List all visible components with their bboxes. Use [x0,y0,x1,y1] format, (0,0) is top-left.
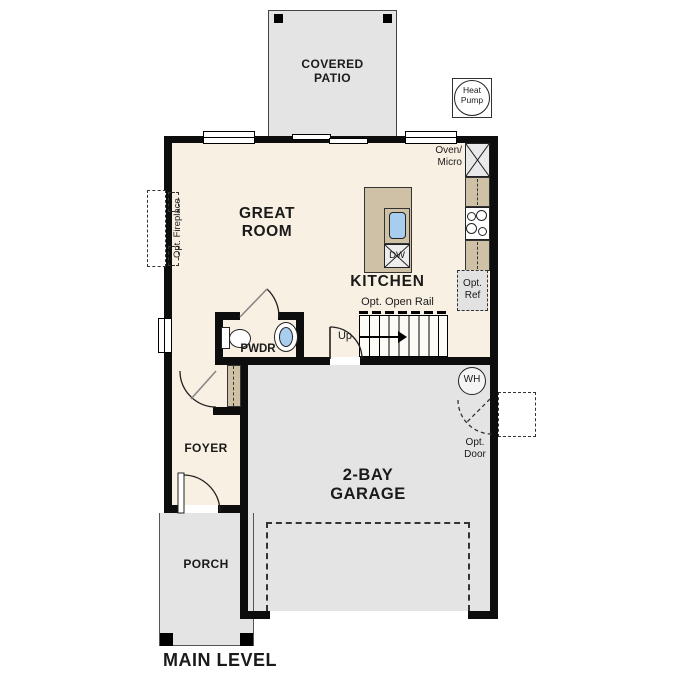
floor-plan: COVERED PATIO Heat Pump Opt. Fireplace [0,0,687,687]
patio-slider-door-left [292,134,331,140]
wall-garage-bottom-right [468,611,498,619]
heat-pump-label: Heat Pump [452,86,492,106]
porch-label: PORCH [162,557,250,571]
kitchen-label: KITCHEN [320,273,455,291]
window-top-left [203,131,255,144]
entry-closet-door [178,368,220,410]
wall-garage-left [240,365,248,619]
patio-post-left [274,14,283,23]
opt-door-outline [498,392,536,437]
porch-post-left [160,633,173,646]
window-left-wall [158,318,172,353]
covered-patio-label: COVERED PATIO [268,57,397,85]
patio-slider-door-right [329,138,368,144]
entry-closet-dash [233,366,234,406]
garage-door-recess [266,522,470,611]
wall-garage-top-left [215,357,330,365]
opt-door-swing [456,396,496,436]
water-heater-label: WH [458,374,486,386]
oven-micro-label: Oven/ Micro [408,145,462,169]
garage-label: 2-BAY GARAGE [290,466,446,505]
entry-closet-panel [227,365,241,407]
pwdr-door [238,286,284,322]
island-sink [389,212,406,239]
opt-open-rail-label: Opt. Open Rail [335,296,460,309]
burner-icon [466,223,477,234]
burner-icon [478,227,487,236]
opt-fireplace-label: Opt. Fireplace [172,188,188,268]
opt-fireplace-outline [147,190,166,267]
pwdr-label: PWDR [228,343,288,357]
opt-ref-label: Opt. Ref [457,278,488,302]
wall-garage-bottom-left [240,611,270,619]
opt-door-label: Opt. Door [452,437,498,461]
great-room-label: GREAT ROOM [200,205,334,242]
open-rail [359,311,448,314]
main-level-title: MAIN LEVEL [148,650,292,671]
up-arrow-line [360,336,400,338]
counter-dash-upper [477,179,478,205]
porch-post-right [240,633,253,646]
up-arrow-head-icon [398,331,407,343]
burner-icon [467,212,476,221]
burner-icon [476,210,487,221]
foyer-label: FOYER [172,441,240,455]
counter-dash-lower [477,242,478,269]
oven-micro-unit [465,143,490,177]
oven-micro-x-icon [466,144,489,176]
patio-post-right [383,14,392,23]
window-top-right [405,131,457,144]
front-door [176,470,224,516]
wall-garage-top-right [360,357,498,365]
dishwasher-label: DW [384,250,410,261]
wall-right-exterior [490,136,498,619]
garage-entry-door [328,325,366,363]
